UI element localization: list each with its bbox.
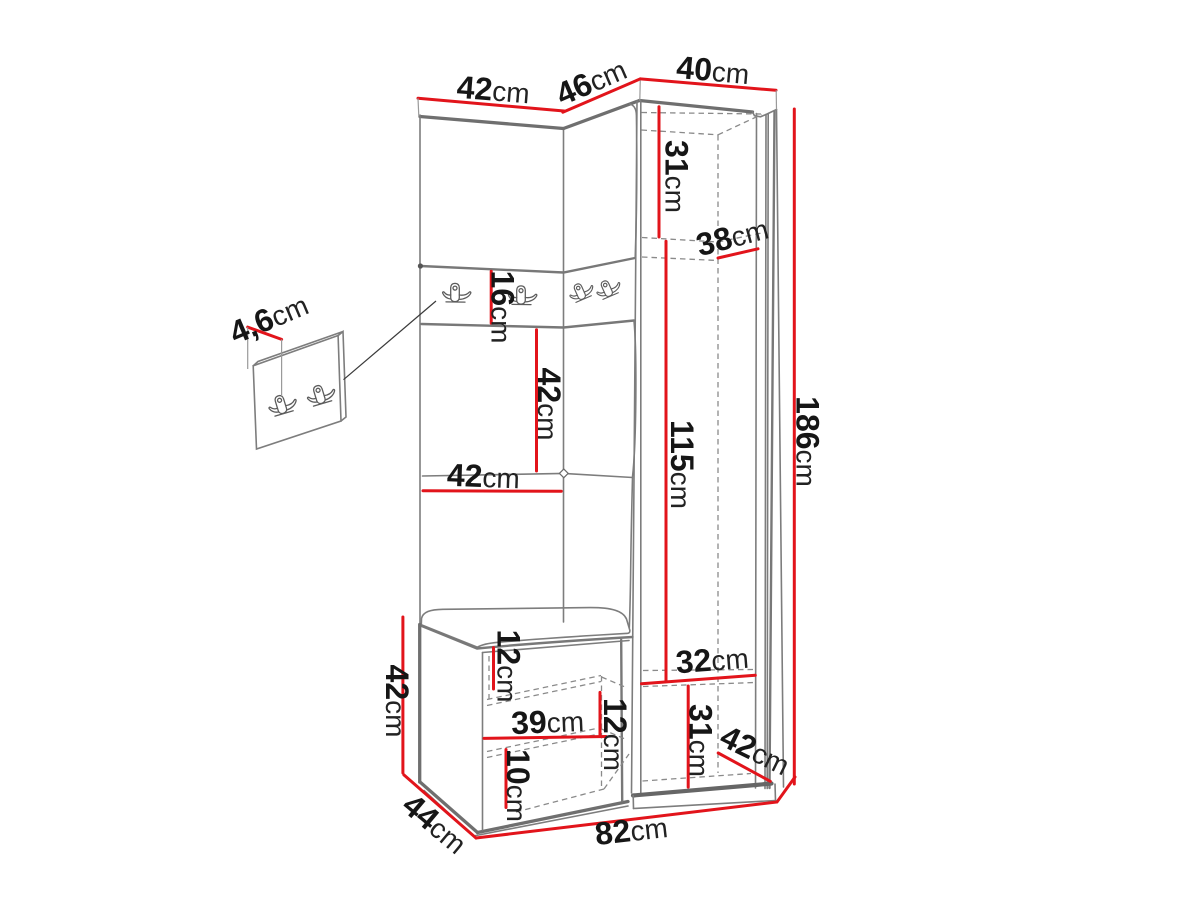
- svg-text:32cm: 32cm: [674, 639, 750, 681]
- svg-text:42cm: 42cm: [531, 368, 567, 441]
- svg-text:10cm: 10cm: [500, 749, 536, 822]
- svg-text:186cm: 186cm: [790, 396, 826, 487]
- svg-text:12cm: 12cm: [597, 698, 633, 771]
- svg-text:115cm: 115cm: [664, 420, 700, 509]
- svg-text:39cm: 39cm: [510, 702, 584, 741]
- svg-text:42cm: 42cm: [379, 665, 415, 738]
- svg-text:16cm: 16cm: [485, 271, 521, 344]
- svg-text:12cm: 12cm: [491, 630, 527, 703]
- svg-text:31cm: 31cm: [683, 704, 719, 777]
- svg-text:31cm: 31cm: [659, 140, 695, 213]
- svg-text:42cm: 42cm: [446, 457, 520, 496]
